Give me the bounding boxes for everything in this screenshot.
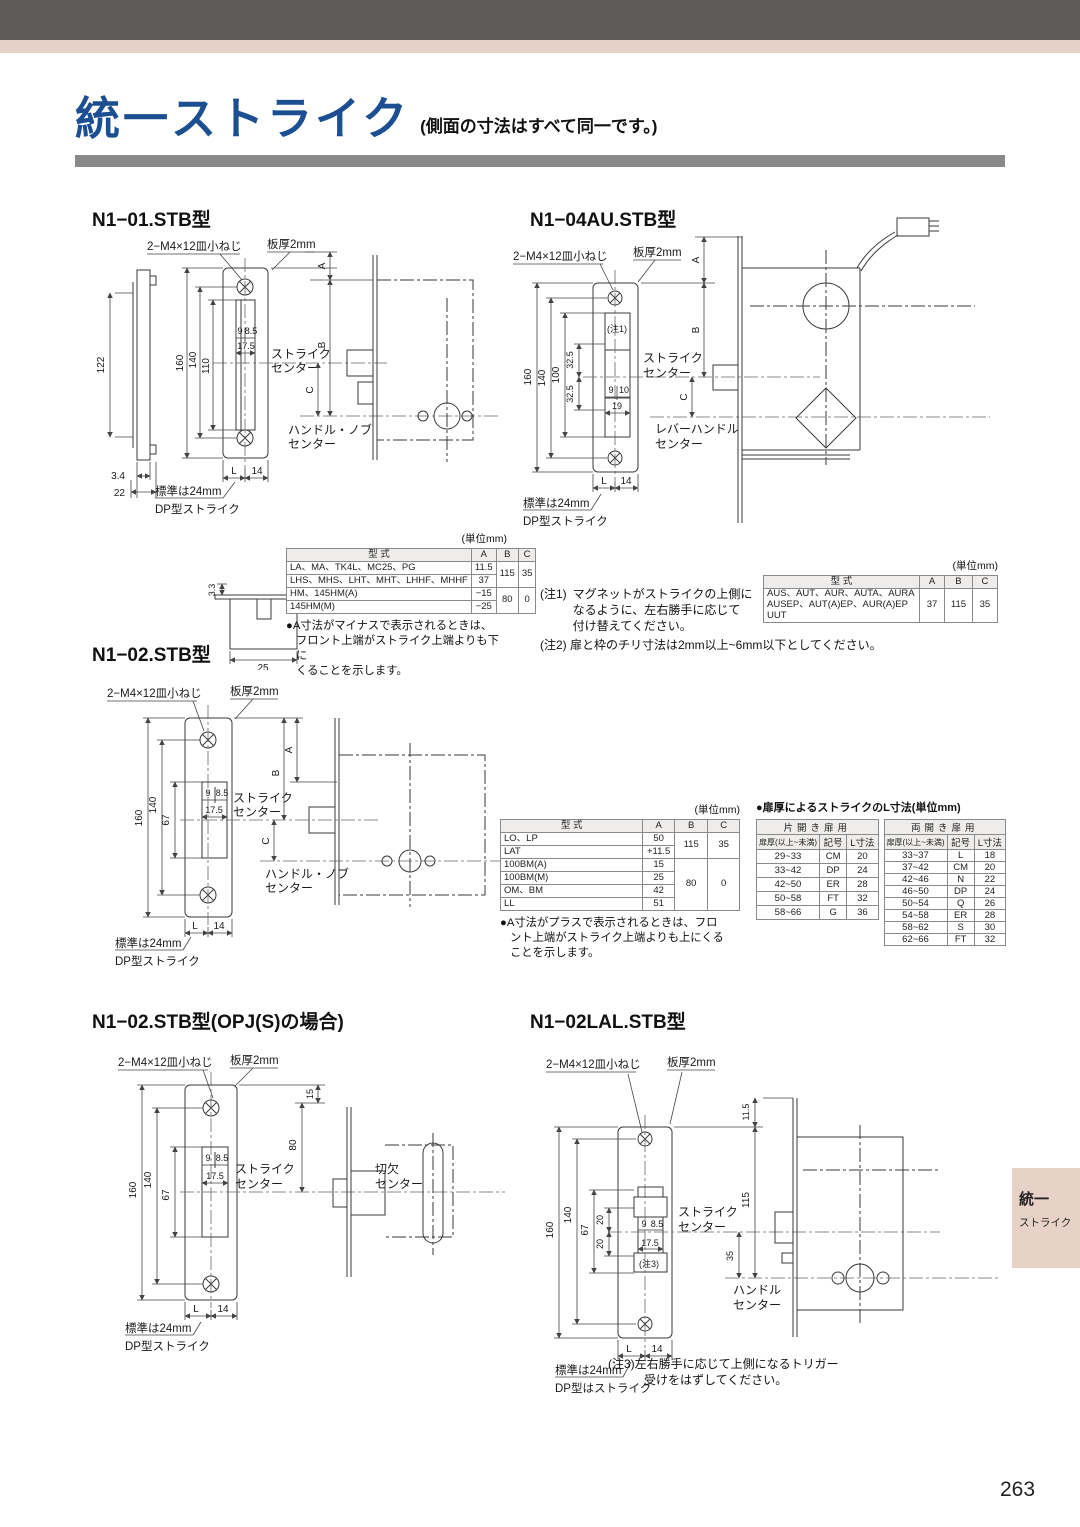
- dim-L: L: [193, 1304, 199, 1315]
- dim-9: 9: [205, 788, 210, 798]
- cell-model: LA、MA、TK4L、MC25、PG: [287, 562, 472, 575]
- screw-callout: 2−M4×12皿小ねじ: [513, 250, 608, 263]
- cell-model: AUS、AUT、AUR、AUTA、AURA AUSEP、AUT(A)EP、AUR…: [764, 589, 920, 623]
- dim-17-5: 17.5: [641, 1238, 659, 1248]
- dim-122: 122: [96, 356, 107, 373]
- lever-center-label-2: センター: [655, 437, 703, 451]
- dim-9: 9: [237, 326, 242, 336]
- dim-14: 14: [251, 466, 263, 477]
- cell: 29~33: [757, 850, 820, 864]
- col-a: A: [919, 576, 944, 589]
- double-door-table: 両開き扉用 扉厚(以上~未満) 記号 L寸法 33~37L18 37~42CM2…: [884, 819, 1007, 946]
- dp-strike-label: DP型ストライク: [115, 954, 200, 968]
- strike-center-label-2: センター: [235, 1177, 283, 1191]
- note1-block: (注1) マグネットがストライクの上側に なるように、左右勝手に応じて 付け替え…: [540, 586, 752, 635]
- drawing-n104au: 2−M4×12皿小ねじ 板厚2mm (注1) 160 140: [505, 210, 1005, 555]
- notch-center-label-2: センター: [375, 1177, 423, 1191]
- dim-160: 160: [523, 368, 534, 385]
- strike-center-label-2: センター: [233, 805, 281, 819]
- cell: Q: [947, 898, 974, 910]
- cell: FT: [947, 934, 974, 946]
- dim-3-3: 3.3: [207, 584, 217, 597]
- title-row: 統一ストライク (側面の寸法はすべて同一です。): [75, 96, 657, 141]
- col-model: 型 式: [287, 549, 472, 562]
- cell: 46~50: [884, 886, 947, 898]
- n102-front-view: [185, 718, 232, 917]
- dim-9: 9: [608, 385, 613, 395]
- single-door-head: 片開き扉用: [757, 820, 879, 835]
- page-subtitle: (側面の寸法はすべて同一です。): [420, 112, 657, 137]
- dim-67: 67: [161, 1189, 172, 1201]
- notch-center-label-1: 切欠: [375, 1161, 399, 1176]
- cell: DP: [820, 864, 847, 878]
- cell: 30: [974, 922, 1005, 934]
- top-dark-band: [0, 0, 1080, 40]
- note-line: 付け替えてください。: [573, 618, 753, 634]
- model-line: UUT: [767, 611, 916, 622]
- table-n104-block: (単位mm) 型 式 A B C AUS、AUT、AUR、AUTA、AURA A…: [763, 558, 998, 623]
- n101-side-view: [133, 270, 156, 460]
- dim-14: 14: [213, 921, 225, 932]
- cell-a: −15: [471, 588, 496, 601]
- unit-label: (単位mm): [763, 558, 998, 573]
- n102-lock-case-view: [309, 718, 485, 907]
- cell-c: 35: [708, 833, 740, 859]
- cell: 33~42: [757, 864, 820, 878]
- page-number: 263: [1000, 1478, 1035, 1502]
- n104-dim-table: 型 式 A B C AUS、AUT、AUR、AUTA、AURA AUSEP、AU…: [763, 575, 998, 623]
- cell: 54~58: [884, 910, 947, 922]
- standard-24mm-label: 標準は24mm: [155, 484, 221, 498]
- cell: ER: [820, 878, 847, 892]
- n101-box-dims: [217, 584, 297, 664]
- cell: 20: [974, 862, 1005, 874]
- dim-B: B: [271, 769, 282, 776]
- dim-80: 80: [288, 1139, 299, 1151]
- dim-140: 140: [537, 369, 548, 386]
- cell: 26: [974, 898, 1005, 910]
- dim-17-5: 17.5: [237, 341, 255, 351]
- cell: 33~37: [884, 850, 947, 862]
- strike-center-label-2: センター: [271, 361, 319, 375]
- note-line: マグネットがストライクの上側に: [573, 586, 753, 602]
- cell: 58~66: [757, 906, 820, 920]
- cell-b: 115: [496, 562, 518, 588]
- cell-a: 50: [643, 833, 675, 846]
- note1-text: マグネットがストライクの上側に なるように、左右勝手に応じて 付け替えてください…: [573, 586, 753, 635]
- dim-11-5: 11.5: [741, 1104, 751, 1121]
- cell: 18: [974, 850, 1005, 862]
- standard-24mm-label: 標準は24mm: [523, 496, 589, 510]
- cell: 42~50: [757, 878, 820, 892]
- col-b: B: [496, 549, 518, 562]
- drawing-n102opj: 2−M4×12皿小ねじ 板厚2mm 160 140 67: [85, 1040, 515, 1380]
- col-a: A: [643, 820, 675, 833]
- l-dimension-block: ●扉厚によるストライクのL寸法(単位mm) 片開き扉用 扉厚(以上~未満) 記号…: [756, 799, 1006, 946]
- lal-lock-case-view: [775, 1098, 940, 1337]
- col-door-thickness: 扉厚(以上~未満): [757, 835, 820, 850]
- side-tab-line1: 統一: [1019, 1188, 1080, 1209]
- cell-a: 11.5: [471, 562, 496, 575]
- side-tab-line2: ストライク: [1019, 1215, 1080, 1230]
- col-door-thickness: 扉厚(以上~未満): [884, 835, 947, 850]
- dim-19: 19: [612, 401, 622, 411]
- dim-L: L: [231, 466, 237, 477]
- col-a: A: [471, 549, 496, 562]
- note3-ref: (注3): [639, 1258, 659, 1269]
- plate-thickness-callout: 板厚2mm: [633, 245, 682, 259]
- plate-thickness-callout: 板厚2mm: [667, 1055, 716, 1069]
- cell: 32: [847, 892, 878, 906]
- dim-9: 9: [641, 1219, 646, 1229]
- cell-model: OM、BM: [501, 885, 643, 898]
- strike-center-label-1: ストライク: [678, 1205, 738, 1219]
- n102-callouts: 2−M4×12皿小ねじ 板厚2mm: [107, 684, 279, 731]
- cell: 36: [847, 906, 878, 920]
- cell-a: +11.5: [643, 846, 675, 859]
- dim-17-5: 17.5: [206, 1171, 224, 1181]
- cell: CM: [947, 862, 974, 874]
- cell: 24: [847, 864, 878, 878]
- cell-model: LO、LP: [501, 833, 643, 846]
- dim-B: B: [691, 326, 702, 333]
- dim-160: 160: [545, 1221, 556, 1238]
- strike-center-label-1: ストライク: [643, 351, 703, 365]
- dim-3-4: 3.4: [111, 471, 125, 482]
- plate-thickness-callout: 板厚2mm: [230, 1053, 279, 1067]
- col-symbol: 記号: [947, 835, 974, 850]
- unit-label: (単位mm): [500, 802, 740, 817]
- heading-n102lal: N1−02LAL.STB型: [530, 1007, 686, 1034]
- handle-center-label-2: センター: [288, 437, 336, 451]
- dim-17-5: 17.5: [205, 805, 223, 815]
- note3-block: (注3)左右勝手に応じて上側になるトリガー 受けをはずしてください。: [608, 1356, 839, 1388]
- dim-A: A: [691, 256, 702, 263]
- dim-67: 67: [580, 1224, 591, 1236]
- dim-67: 67: [161, 814, 172, 826]
- dim-32-5-lower: 32.5: [565, 385, 575, 403]
- cell: 62~66: [884, 934, 947, 946]
- note-line: ント上端がストライク上端よりも上にくる: [500, 931, 740, 946]
- dim-14: 14: [651, 1344, 663, 1355]
- dim-9: 9: [205, 1153, 210, 1163]
- dim-110: 110: [201, 358, 212, 374]
- screw-callout: 2−M4×12皿小ねじ: [107, 687, 202, 700]
- note-line: ことを示します。: [500, 946, 740, 961]
- cell-a: 25: [643, 872, 675, 885]
- dim-14: 14: [217, 1304, 229, 1315]
- cell-b: 115: [675, 833, 708, 859]
- n102-table-note: ●A寸法がプラスで表示されるときは、フロ ント上端がストライク上端よりも上にくる…: [500, 916, 740, 961]
- strike-center-label-2: センター: [678, 1220, 726, 1234]
- cell: 20: [847, 850, 878, 864]
- n101-dim-table: 型 式 A B C LA、MA、TK4L、MC25、PG 11.5 115 35…: [286, 548, 536, 614]
- dim-140: 140: [148, 796, 159, 813]
- dim-A: A: [284, 746, 295, 753]
- col-c: C: [518, 549, 536, 562]
- cell: 37~42: [884, 862, 947, 874]
- dim-8-5: 8.5: [651, 1219, 664, 1229]
- col-b: B: [675, 820, 708, 833]
- cell: 28: [974, 910, 1005, 922]
- dim-A: A: [317, 262, 328, 269]
- lal-height-dims: [554, 1127, 636, 1338]
- cell: L: [947, 850, 974, 862]
- cell-model: 145HM(M): [287, 601, 472, 614]
- cell: 22: [974, 874, 1005, 886]
- dim-15: 15: [305, 1089, 315, 1099]
- cell: 50~54: [884, 898, 947, 910]
- n101-callouts: 2−M4×12皿小ねじ 板厚2mm: [147, 237, 316, 280]
- drawing-n102: 2−M4×12皿小ねじ 板厚2mm 160 140 67: [85, 655, 505, 985]
- handle-center-label-2: センター: [733, 1298, 781, 1312]
- drawing-n102lal: 2−M4×12皿小ねじ 板厚2mm (注3) 16: [520, 1040, 1010, 1400]
- dim-10: 10: [619, 385, 629, 395]
- n101-table-note: ●A寸法がマイナスで表示されるときは、 フロント上端がストライク上端よりも下に …: [286, 619, 507, 679]
- cell-c: 0: [708, 859, 740, 911]
- n102-dim-table: 型 式 A B C LO、LP 50 115 35 LAT +11.5 100B…: [500, 819, 740, 911]
- cell-model: LHS、MHS、LHT、MHT、LHHF、MHHF: [287, 575, 472, 588]
- title-divider-bar: [75, 155, 1005, 167]
- cell: DP: [947, 886, 974, 898]
- cell-b: 80: [496, 588, 518, 614]
- cell-b: 80: [675, 859, 708, 911]
- col-l-dim: L寸法: [847, 835, 878, 850]
- col-c: C: [708, 820, 740, 833]
- note-line: (注3)左右勝手に応じて上側になるトリガー: [608, 1356, 839, 1372]
- side-index-tab: 統一 ストライク: [1012, 1168, 1080, 1268]
- cell: 24: [974, 886, 1005, 898]
- dim-140: 140: [143, 1171, 154, 1188]
- heading-n102opj: N1−02.STB型(OPJ(S)の場合): [92, 1007, 344, 1034]
- top-pink-band: [0, 40, 1080, 53]
- unit-label: (単位mm): [286, 531, 507, 546]
- dim-C: C: [679, 393, 690, 400]
- n102-abc-dims: [234, 718, 337, 861]
- col-b: B: [945, 576, 973, 589]
- note2-block: (注2) 扉と枠のチリ寸法は2mm以上~6mm以下としてください。: [540, 637, 882, 653]
- screw-callout: 2−M4×12皿小ねじ: [546, 1058, 641, 1071]
- strike-center-label-2: センター: [643, 366, 691, 380]
- n102-height-dims: [143, 718, 202, 917]
- note-line: フロント上端がストライク上端よりも下に: [286, 634, 507, 664]
- note-line: ●A寸法がプラスで表示されるときは、フロ: [500, 916, 740, 931]
- dim-L: L: [626, 1344, 632, 1355]
- handle-center-label-1: ハンドル・ノブ: [288, 422, 372, 437]
- dim-8-5: 8.5: [245, 326, 258, 336]
- dim-20-lower: 20: [595, 1239, 605, 1249]
- cell-c: 0: [518, 588, 536, 614]
- lal-callouts: 2−M4×12皿小ねじ 板厚2mm: [546, 1055, 716, 1132]
- handle-center-label-1: ハンドル・ノブ: [265, 866, 349, 881]
- table-n101-block: (単位mm) 型 式 A B C LA、MA、TK4L、MC25、PG 11.5…: [286, 531, 507, 679]
- standard-24mm-label: 標準は24mm: [115, 936, 181, 950]
- col-model: 型 式: [764, 576, 920, 589]
- cell: CM: [820, 850, 847, 864]
- dim-8-5: 8.5: [216, 1153, 229, 1163]
- cell-c: 35: [972, 589, 997, 623]
- dim-35: 35: [725, 1251, 735, 1261]
- cell-a: 37: [471, 575, 496, 588]
- col-model: 型 式: [501, 820, 643, 833]
- cell: 32: [974, 934, 1005, 946]
- handle-center-label-1: ハンドル: [733, 1283, 781, 1297]
- dim-20-upper: 20: [595, 1215, 605, 1225]
- screw-callout: 2−M4×12皿小ねじ: [118, 1056, 213, 1069]
- note1-ref: (注1): [607, 323, 627, 334]
- screw-callout: 2−M4×12皿小ねじ: [147, 240, 242, 253]
- cell-a: 51: [643, 898, 675, 911]
- note-line: ●A寸法がマイナスで表示されるときは、: [286, 619, 507, 634]
- page-title: 統一ストライク: [75, 96, 410, 141]
- col-c: C: [972, 576, 997, 589]
- strike-center-label-1: ストライク: [235, 1162, 295, 1176]
- cell-model: LAT: [501, 846, 643, 859]
- n104-front-view: [593, 283, 638, 472]
- dim-160: 160: [175, 354, 186, 371]
- handle-center-label-2: センター: [265, 881, 313, 895]
- cell-model: 100BM(M): [501, 872, 643, 885]
- double-door-head: 両開き扉用: [884, 820, 1006, 835]
- cell-a: 15: [643, 859, 675, 872]
- dim-140: 140: [563, 1206, 574, 1223]
- note-line: なるように、左右勝手に応じて: [573, 602, 753, 618]
- dim-L: L: [601, 476, 607, 487]
- cell: N: [947, 874, 974, 886]
- cell-a: 42: [643, 885, 675, 898]
- plate-thickness-callout: 板厚2mm: [267, 237, 316, 251]
- dp-strike-label: DP型ストライク: [523, 514, 608, 528]
- cell: 28: [847, 878, 878, 892]
- dp-strike-label: DP型ストライク: [125, 1339, 210, 1353]
- cell: S: [947, 922, 974, 934]
- dim-140: 140: [188, 351, 199, 368]
- dim-8-5: 8.5: [216, 788, 229, 798]
- col-symbol: 記号: [820, 835, 847, 850]
- dim-C: C: [261, 837, 272, 844]
- single-door-table: 片開き扉用 扉厚(以上~未満) 記号 L寸法 29~33CM20 33~42DP…: [756, 819, 879, 920]
- dim-160: 160: [128, 1181, 139, 1198]
- dim-160: 160: [134, 809, 145, 826]
- dim-115: 115: [741, 1192, 752, 1208]
- dim-22: 22: [114, 488, 126, 499]
- cell: FT: [820, 892, 847, 906]
- dim-B: B: [317, 341, 328, 348]
- n104-lock-case-view: [713, 218, 975, 523]
- cell: 58~62: [884, 922, 947, 934]
- dim-32-5-upper: 32.5: [565, 351, 575, 369]
- cell-b: 115: [945, 589, 973, 623]
- cell: 42~46: [884, 874, 947, 886]
- note1-label: (注1): [540, 586, 567, 635]
- dim-L: L: [192, 921, 198, 932]
- note-line: 受けをはずしてください。: [608, 1372, 839, 1388]
- l-table-title: ●扉厚によるストライクのL寸法(単位mm): [756, 799, 1006, 815]
- lever-center-label-1: レバーハンドル: [655, 422, 739, 436]
- cell-a: 37: [919, 589, 944, 623]
- model-line: AUSEP、AUT(A)EP、AUR(A)EP: [767, 600, 916, 611]
- col-l-dim: L寸法: [974, 835, 1005, 850]
- cell-model: 100BM(A): [501, 859, 643, 872]
- cell: 50~58: [757, 892, 820, 906]
- cell-model: HM、145HM(A): [287, 588, 472, 601]
- cell: G: [820, 906, 847, 920]
- cell-a: −25: [471, 601, 496, 614]
- plate-thickness-callout: 板厚2mm: [230, 684, 279, 698]
- cell: ER: [947, 910, 974, 922]
- standard-24mm-label: 標準は24mm: [125, 1321, 191, 1335]
- cell-model: LL: [501, 898, 643, 911]
- dim-C: C: [305, 386, 316, 393]
- dp-strike-label: DP型ストライク: [155, 502, 240, 516]
- table-n102-block: (単位mm) 型 式 A B C LO、LP 50 115 35 LAT +11…: [500, 802, 740, 961]
- cell-c: 35: [518, 562, 536, 588]
- dim-14: 14: [620, 476, 632, 487]
- note-line: くることを示します。: [286, 664, 507, 679]
- dim-100: 100: [551, 366, 562, 383]
